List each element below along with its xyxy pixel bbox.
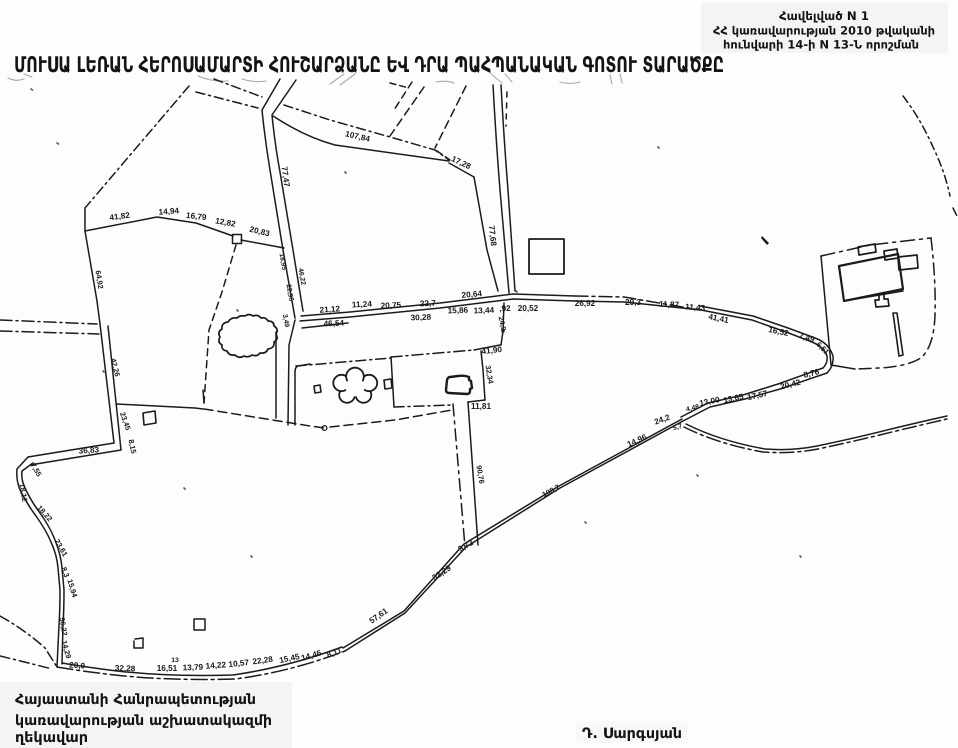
svg-text:22,28: 22,28	[252, 655, 274, 667]
svg-text:26,92: 26,92	[575, 299, 596, 308]
svg-text:42,26: 42,26	[109, 357, 122, 377]
svg-text:9,72: 9,72	[457, 538, 476, 554]
svg-text:32,34: 32,34	[483, 365, 495, 386]
svg-text:41,82: 41,82	[109, 211, 131, 223]
svg-text:17,57: 17,57	[746, 389, 768, 402]
svg-text:90,76: 90,76	[474, 465, 486, 485]
svg-text:11,81: 11,81	[471, 402, 491, 411]
svg-text:,92: ,92	[499, 304, 511, 313]
svg-text:32,28: 32,28	[115, 664, 136, 674]
svg-text:13,65: 13,65	[723, 392, 745, 405]
svg-text:24,9: 24,9	[497, 316, 509, 332]
svg-text:36,83: 36,83	[78, 445, 100, 455]
svg-text:17,28: 17,28	[450, 154, 473, 171]
svg-text:18,12: 18,12	[17, 483, 29, 503]
svg-text:15,94: 15,94	[65, 578, 79, 599]
svg-text:41,41: 41,41	[708, 312, 730, 325]
svg-text:22,7: 22,7	[420, 299, 437, 309]
svg-text:8,3: 8,3	[59, 566, 71, 579]
svg-text:21,12: 21,12	[319, 304, 341, 314]
svg-text:20,75: 20,75	[381, 301, 402, 311]
svg-text:107,84: 107,84	[344, 129, 371, 144]
svg-text:57,61: 57,61	[368, 606, 390, 625]
svg-text:29,3: 29,3	[625, 298, 641, 307]
svg-text:32,29: 32,29	[431, 563, 453, 582]
svg-text:41,90: 41,90	[481, 345, 503, 356]
svg-text:8,76: 8,76	[803, 367, 821, 380]
svg-text:20,64: 20,64	[461, 289, 483, 300]
svg-text:11,43: 11,43	[685, 302, 706, 312]
svg-text:23,45: 23,45	[118, 411, 133, 431]
svg-text:3,49: 3,49	[281, 314, 290, 328]
svg-text:22,96: 22,96	[285, 284, 295, 302]
svg-text:16,51: 16,51	[157, 664, 178, 673]
svg-text:11,87: 11,87	[659, 300, 680, 310]
svg-text:18,95: 18,95	[278, 253, 288, 271]
svg-text:13,44: 13,44	[474, 306, 495, 316]
svg-text:14,22: 14,22	[205, 660, 227, 670]
svg-text:13,79: 13,79	[183, 663, 204, 673]
svg-text:20,52: 20,52	[518, 304, 539, 313]
svg-text:11,24: 11,24	[352, 299, 373, 309]
svg-text:12,82: 12,82	[215, 216, 237, 228]
svg-text:20,9: 20,9	[69, 660, 86, 670]
svg-text:15,86: 15,86	[448, 306, 469, 316]
svg-text:20,42: 20,42	[779, 378, 801, 392]
svg-text:16,79: 16,79	[186, 211, 208, 222]
svg-text:14,94: 14,94	[158, 206, 180, 216]
svg-text:7,49: 7,49	[798, 331, 816, 344]
svg-text:108,7: 108,7	[541, 482, 562, 499]
svg-text:24,2: 24,2	[653, 413, 671, 427]
svg-text:46,54: 46,54	[323, 318, 344, 328]
svg-text:5,7: 5,7	[672, 423, 683, 432]
svg-text:4,48: 4,48	[685, 404, 700, 414]
svg-text:77,68: 77,68	[487, 225, 498, 247]
svg-text:10,57: 10,57	[228, 658, 250, 669]
svg-text:30,28: 30,28	[411, 313, 432, 323]
svg-text:8,15: 8,15	[127, 439, 139, 455]
svg-text:13: 13	[171, 657, 179, 664]
svg-text:20,83: 20,83	[249, 225, 271, 239]
svg-text:64,92: 64,92	[94, 270, 106, 290]
